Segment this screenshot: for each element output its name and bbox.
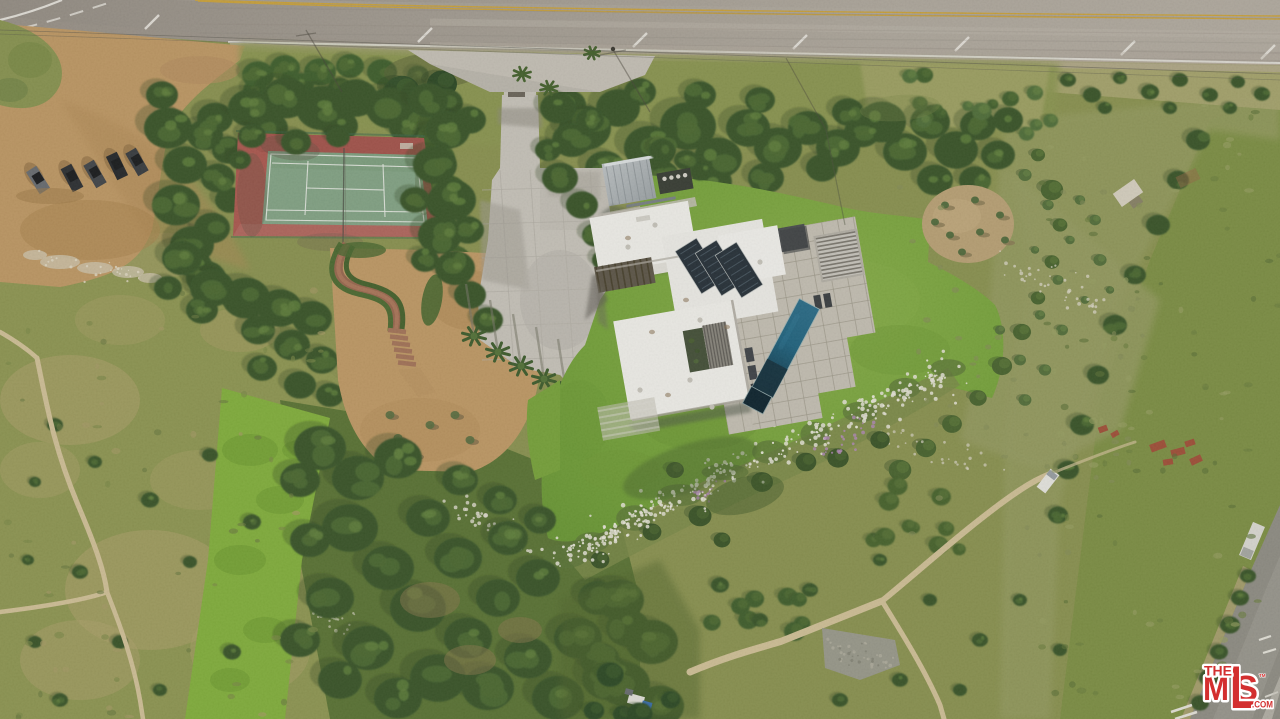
svg-text:.COM: .COM [1252,700,1273,710]
svg-text:THE: THE [1204,663,1232,679]
svg-text:TM: TM [1259,673,1266,678]
